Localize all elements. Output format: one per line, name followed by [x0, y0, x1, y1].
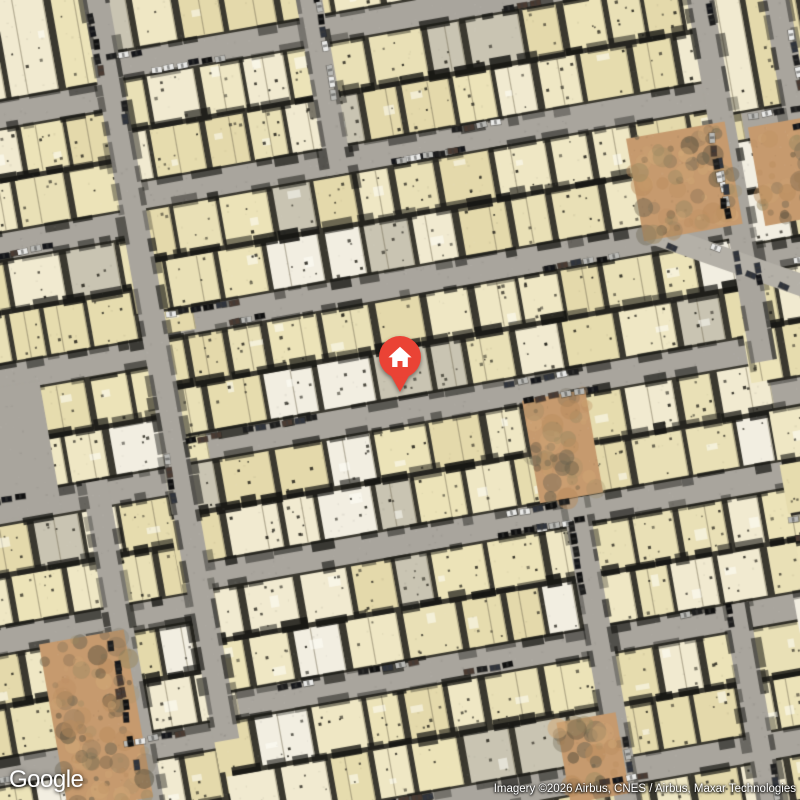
map-viewport: Google Imagery ©2026 Airbus, CNES / Airb… — [0, 0, 800, 800]
marker-pin-graphic — [376, 333, 424, 395]
map-attribution: Imagery ©2026 Airbus, CNES / Airbus, Max… — [494, 783, 796, 795]
house-icon-door — [398, 361, 403, 367]
google-logo[interactable]: Google — [9, 766, 83, 794]
location-marker-pin[interactable] — [376, 333, 424, 395]
satellite-map[interactable] — [0, 0, 800, 800]
